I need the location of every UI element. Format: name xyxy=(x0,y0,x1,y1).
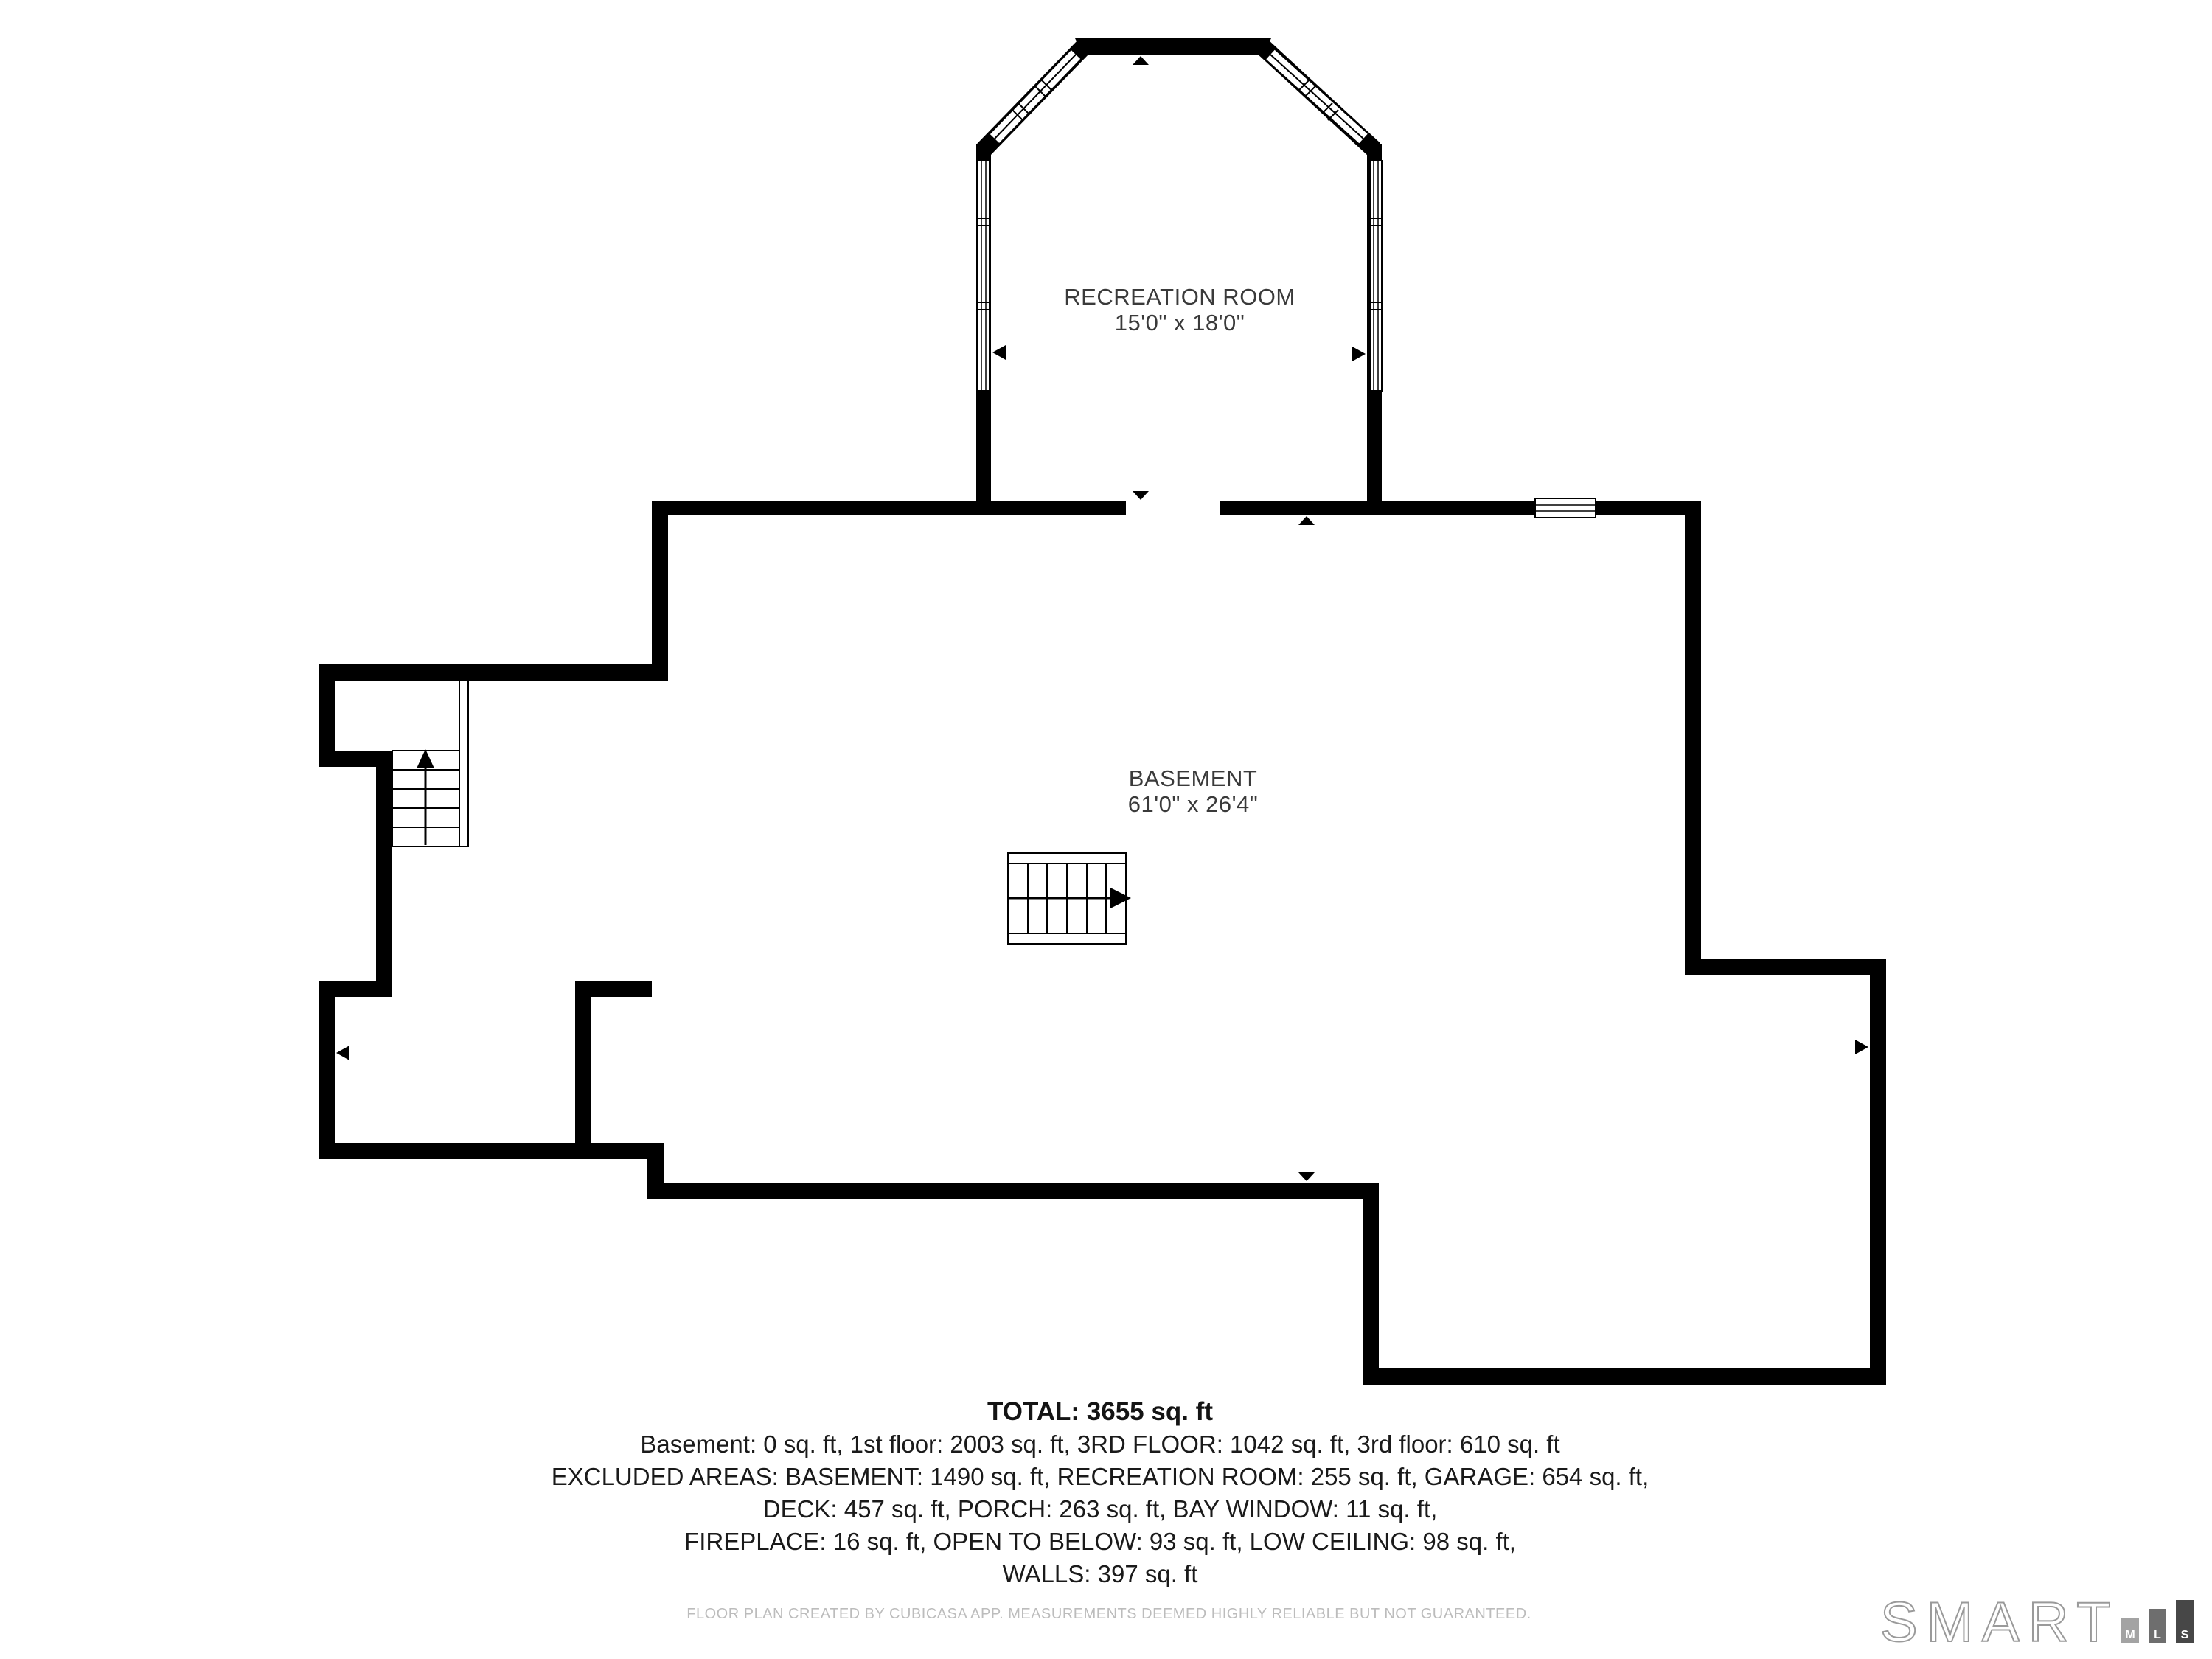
window-recroom-left xyxy=(978,161,990,391)
smartmls-bar-l-letter: L xyxy=(2154,1629,2161,1641)
up-arrow-icon xyxy=(1298,516,1315,525)
up-arrow-icon xyxy=(1133,56,1149,65)
wall-right-section-left xyxy=(1363,1183,1379,1385)
summary-line-floors: Basement: 0 sq. ft, 1st floor: 2003 sq. … xyxy=(640,1430,1559,1458)
door-opening-recroom xyxy=(1126,500,1220,516)
wall-notch-vertical xyxy=(376,751,392,997)
room-labels: RECREATION ROOM 15'0" x 18'0" BASEMENT 6… xyxy=(1064,284,1295,817)
wall-right-upper xyxy=(1685,501,1701,975)
basement-name: BASEMENT xyxy=(1129,765,1258,791)
summary-total: TOTAL: 3655 sq. ft xyxy=(987,1397,1213,1426)
wall-bottom-left xyxy=(319,1143,664,1159)
staircase-left-rail xyxy=(459,681,468,846)
summary-line-walls: WALLS: 397 sq. ft xyxy=(1003,1560,1198,1587)
smartmls-logo-word: SMART xyxy=(1880,1591,2120,1654)
wall-right-lower xyxy=(1870,959,1886,1385)
summary-line-deck: DECK: 457 sq. ft, PORCH: 263 sq. ft, BAY… xyxy=(763,1495,1438,1523)
wall-bottom-right xyxy=(1363,1368,1886,1385)
wall-interior-vertical xyxy=(575,981,591,1159)
wall-interior-horizontal xyxy=(575,981,652,997)
recroom-wall-top xyxy=(1075,38,1271,55)
direction-markers xyxy=(336,56,1868,1181)
wall-bottom-middle xyxy=(647,1183,1379,1199)
recreation-room-name: RECREATION ROOM xyxy=(1064,284,1295,310)
area-summary: TOTAL: 3655 sq. ft Basement: 0 sq. ft, 1… xyxy=(552,1397,1649,1622)
window-basement-top xyxy=(1535,498,1596,518)
summary-line-fireplace: FIREPLACE: 16 sq. ft, OPEN TO BELOW: 93 … xyxy=(684,1528,1516,1555)
wall-left-upper xyxy=(652,501,668,681)
wall-step-horizontal xyxy=(1685,959,1886,975)
smartmls-logo: SMART M L S xyxy=(1880,1591,2194,1654)
left-arrow-icon xyxy=(992,345,1006,360)
smartmls-bar-s-letter: S xyxy=(2181,1629,2189,1641)
smartmls-bar-m-letter: M xyxy=(2125,1629,2135,1641)
summary-line-excluded: EXCLUDED AREAS: BASEMENT: 1490 sq. ft, R… xyxy=(552,1463,1649,1490)
wall-upper-left-horizontal xyxy=(319,664,668,681)
disclaimer: FLOOR PLAN CREATED BY CUBICASA APP. MEAS… xyxy=(686,1606,1531,1622)
staircase-central xyxy=(1008,853,1131,944)
basement-dimensions: 61'0" x 26'4" xyxy=(1128,791,1259,817)
floor-plan-page: RECREATION ROOM 15'0" x 18'0" BASEMENT 6… xyxy=(0,0,2212,1659)
window-recroom-diagonal-right xyxy=(1270,55,1363,139)
down-arrow-icon xyxy=(1133,491,1149,500)
window-recroom-right xyxy=(1370,161,1382,391)
right-arrow-icon xyxy=(1855,1040,1868,1054)
staircase-left xyxy=(392,681,468,846)
floor-plan-canvas: RECREATION ROOM 15'0" x 18'0" BASEMENT 6… xyxy=(0,0,2212,1659)
wall-left-b xyxy=(319,981,335,1159)
window-recroom-diagonal-left xyxy=(995,55,1076,139)
left-arrow-icon xyxy=(336,1046,349,1060)
down-arrow-icon xyxy=(1298,1172,1315,1181)
recreation-room-dimensions: 15'0" x 18'0" xyxy=(1115,310,1245,335)
right-arrow-icon xyxy=(1352,347,1366,361)
